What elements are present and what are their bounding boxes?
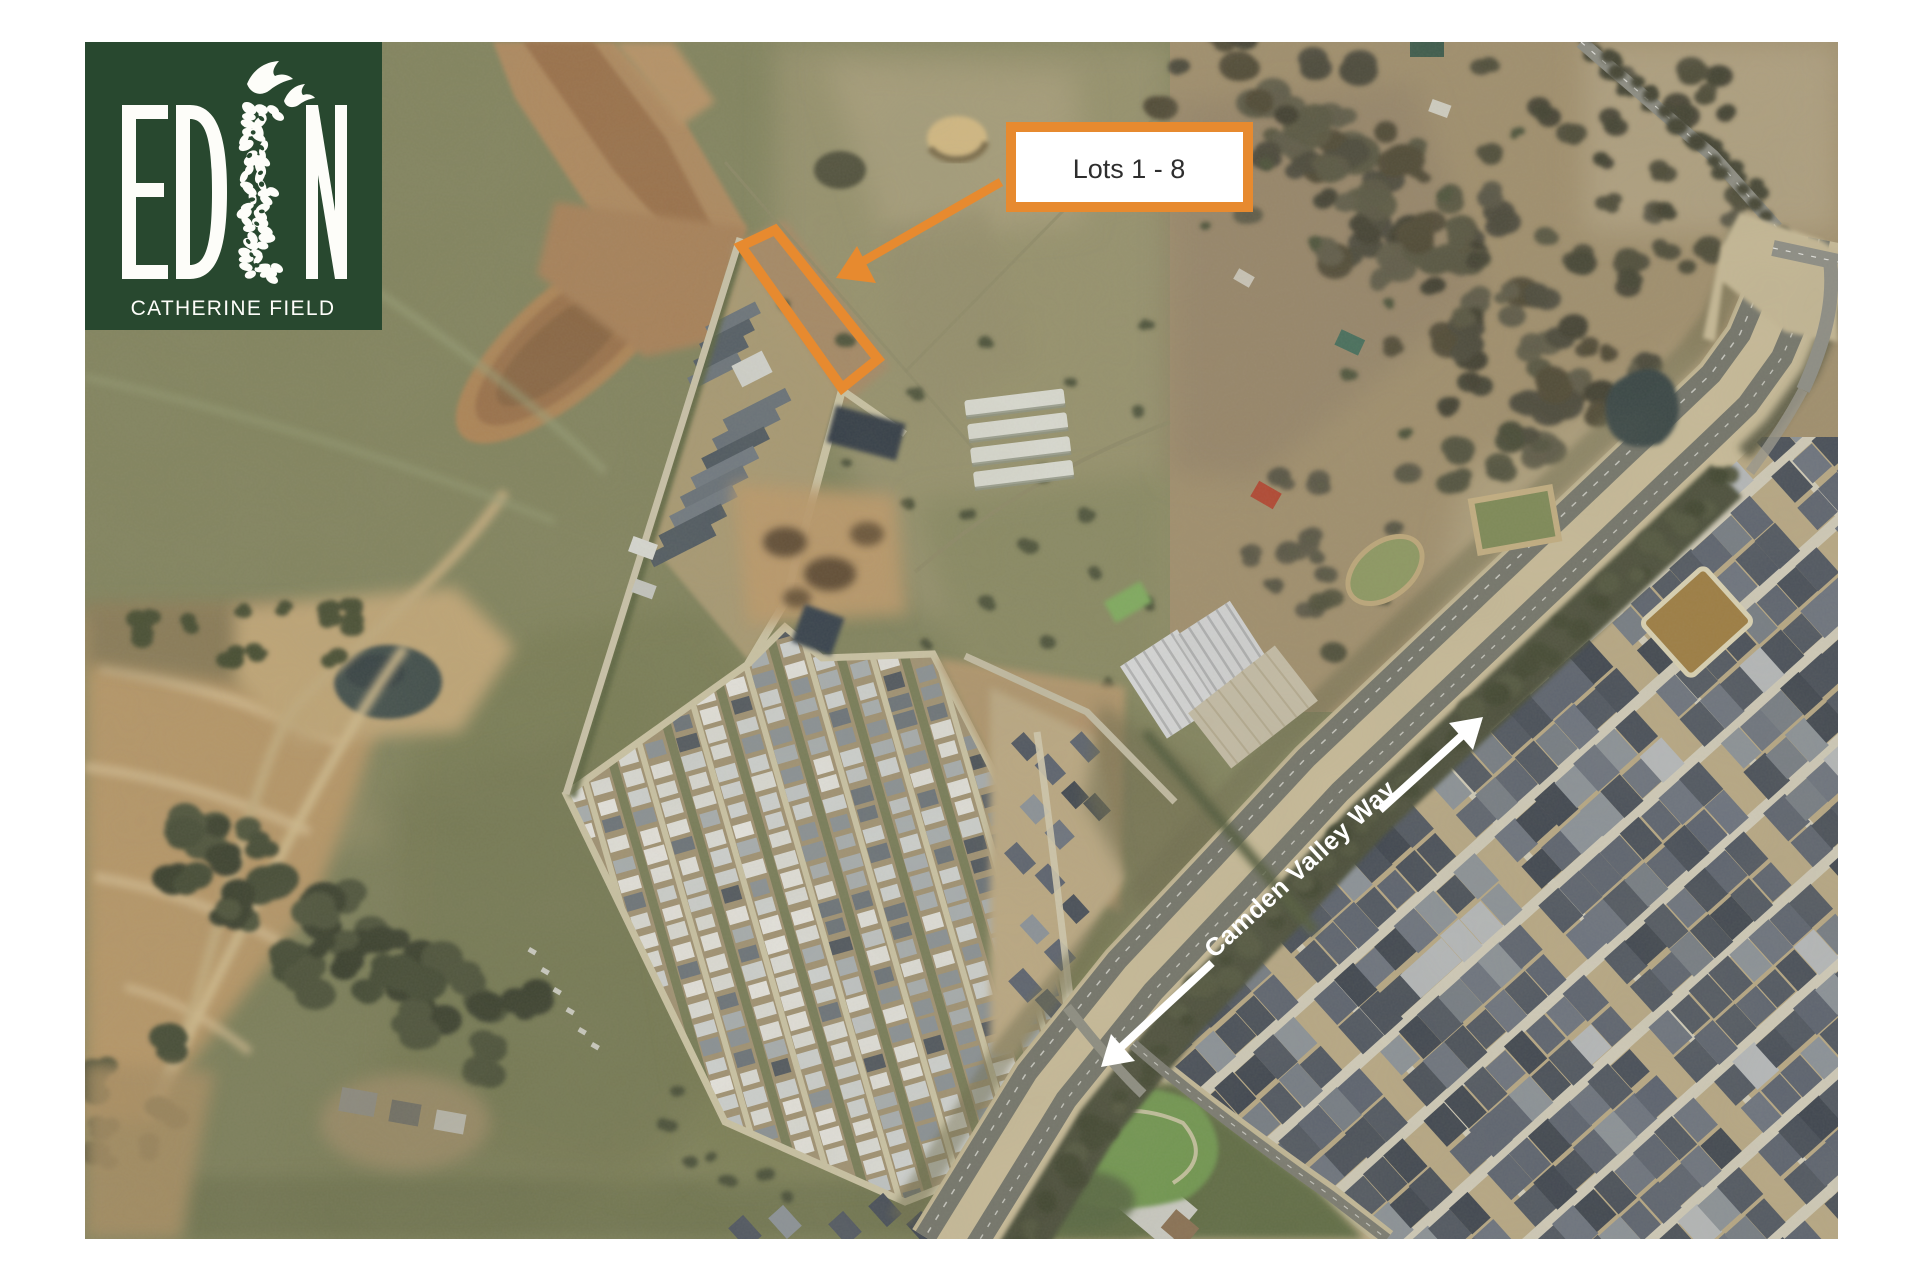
svg-text:CATHERINE FIELD: CATHERINE FIELD <box>131 297 336 320</box>
svg-text:Lots 1 - 8: Lots 1 - 8 <box>1073 154 1186 184</box>
